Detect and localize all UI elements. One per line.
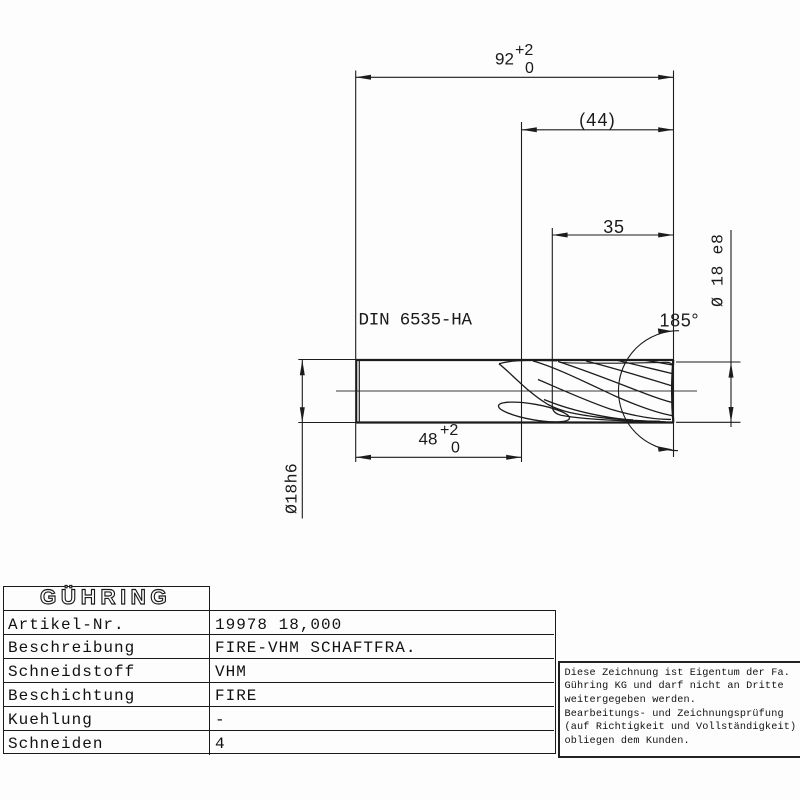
svg-text:+2: +2 <box>440 422 458 439</box>
svg-text:Ø18h6: Ø18h6 <box>283 463 302 514</box>
svg-text:185°: 185° <box>660 311 700 331</box>
svg-text:48: 48 <box>419 430 438 449</box>
svg-text:35: 35 <box>603 217 625 237</box>
svg-text:0: 0 <box>451 440 460 457</box>
svg-text:DIN 6535-HA: DIN 6535-HA <box>359 311 473 331</box>
svg-text:92: 92 <box>495 50 514 69</box>
svg-text:(44): (44) <box>579 110 616 130</box>
svg-text:0: 0 <box>525 60 534 77</box>
svg-text:Ø 18 e8: Ø 18 e8 <box>709 233 728 307</box>
svg-text:+2: +2 <box>515 42 533 59</box>
